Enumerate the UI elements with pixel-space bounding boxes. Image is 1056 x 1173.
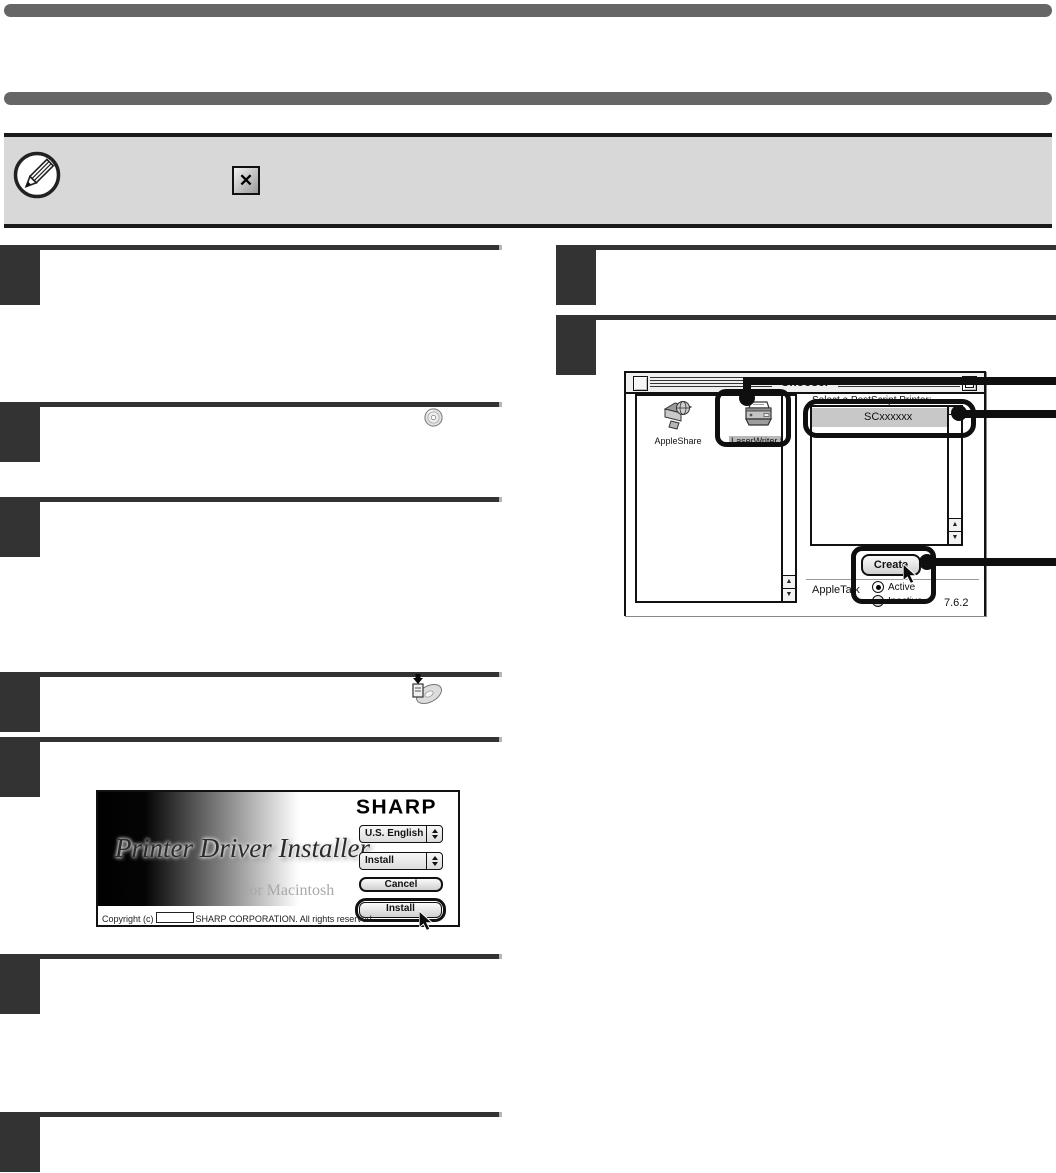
callout-line-printer-item [963,410,1056,418]
device-appleshare[interactable]: AppleShare [647,399,709,449]
step-r2-marker [556,315,596,375]
cd-rom-icon [424,408,443,427]
step-5-marker [0,737,40,797]
copyright-text: Copyright (c)SHARP CORPORATION. All righ… [102,912,374,924]
copyright-prefix: Copyright (c) [102,914,154,924]
scroll-down-icon[interactable]: ▼ [949,531,961,544]
callout-line-laserwriter [743,377,1056,385]
appleshare-icon [661,399,695,431]
step-3-marker [0,497,40,557]
callout-dot [739,390,755,406]
copyright-suffix: SHARP CORPORATION. All rights reserved. [196,914,375,924]
callout-dot [951,405,967,421]
callout-box-printer-item [803,399,976,438]
language-popup[interactable]: U.S. English [359,825,443,843]
note-box: ✕ [4,133,1052,228]
step-4-marker [0,672,40,732]
step-rule [0,1112,499,1117]
version-text: 7.6.2 [944,597,968,609]
step-2-marker [0,402,40,462]
installer-subtitle: for Macintosh [244,882,334,900]
installer-dialog: Printer Driver Installer for Macintosh S… [96,790,460,927]
step-1-marker [0,245,40,305]
popup-stepper-icon [426,826,442,842]
language-popup-value: U.S. English [365,828,423,839]
mouse-cursor-icon [903,564,918,584]
step-6-marker [0,954,40,1014]
installer-title: Printer Driver Installer [115,833,370,864]
step-rule [0,497,499,502]
mouse-cursor-icon [419,911,434,931]
exit-button-icon: ✕ [232,166,260,195]
popup-stepper-icon [426,853,442,869]
step-rule [0,954,499,959]
installer-disk-icon [410,674,444,707]
pencil-note-icon [12,150,62,200]
step-rule [0,737,499,742]
device-label: AppleShare [652,436,703,446]
callout-dot [919,554,935,570]
step-rule [0,245,499,250]
scroll-down-icon[interactable]: ▼ [783,588,795,601]
close-box-icon[interactable] [633,376,648,391]
sharp-logo: SHARP [356,797,437,820]
header-bar [4,4,1052,17]
action-popup-value: Install [365,855,394,866]
section-bar [4,92,1052,105]
callout-line-create [927,558,1056,566]
step-7-marker [0,1112,40,1172]
redacted-model-box [156,912,194,923]
step-rule [556,245,1056,250]
step-rule [556,315,1056,320]
step-r1-marker [556,245,596,305]
action-popup[interactable]: Install [359,852,443,870]
scroll-up-icon[interactable]: ▲ [949,518,961,531]
manual-page: ✕ Chooser [0,0,1056,1173]
step-rule [0,402,499,407]
cancel-button[interactable]: Cancel [359,877,443,892]
scroll-up-icon[interactable]: ▲ [783,575,795,588]
